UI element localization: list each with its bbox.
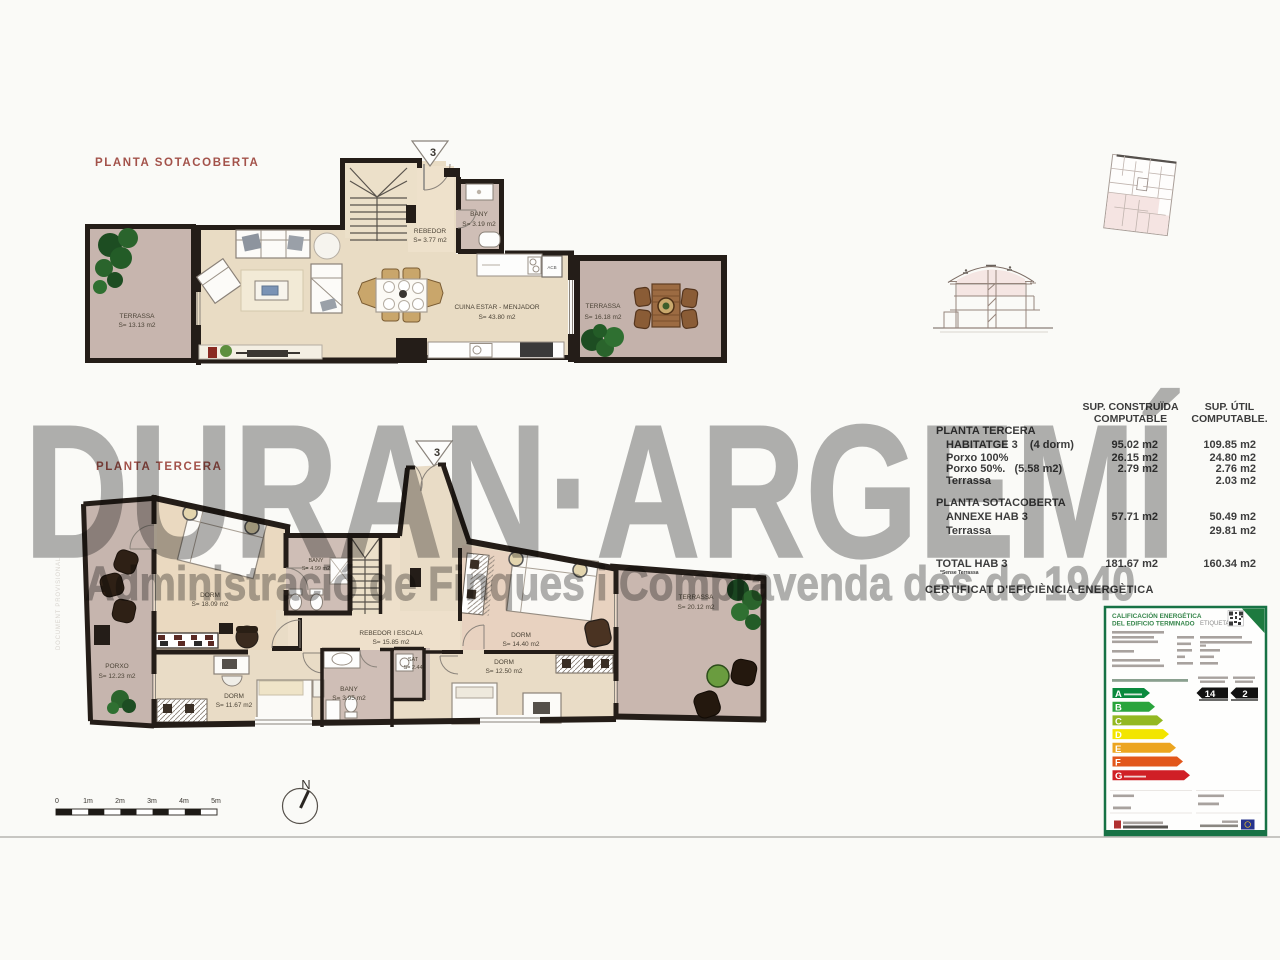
svg-text:Administració de Finques i Com: Administració de Finques i Compravenda d… [85, 558, 1135, 611]
